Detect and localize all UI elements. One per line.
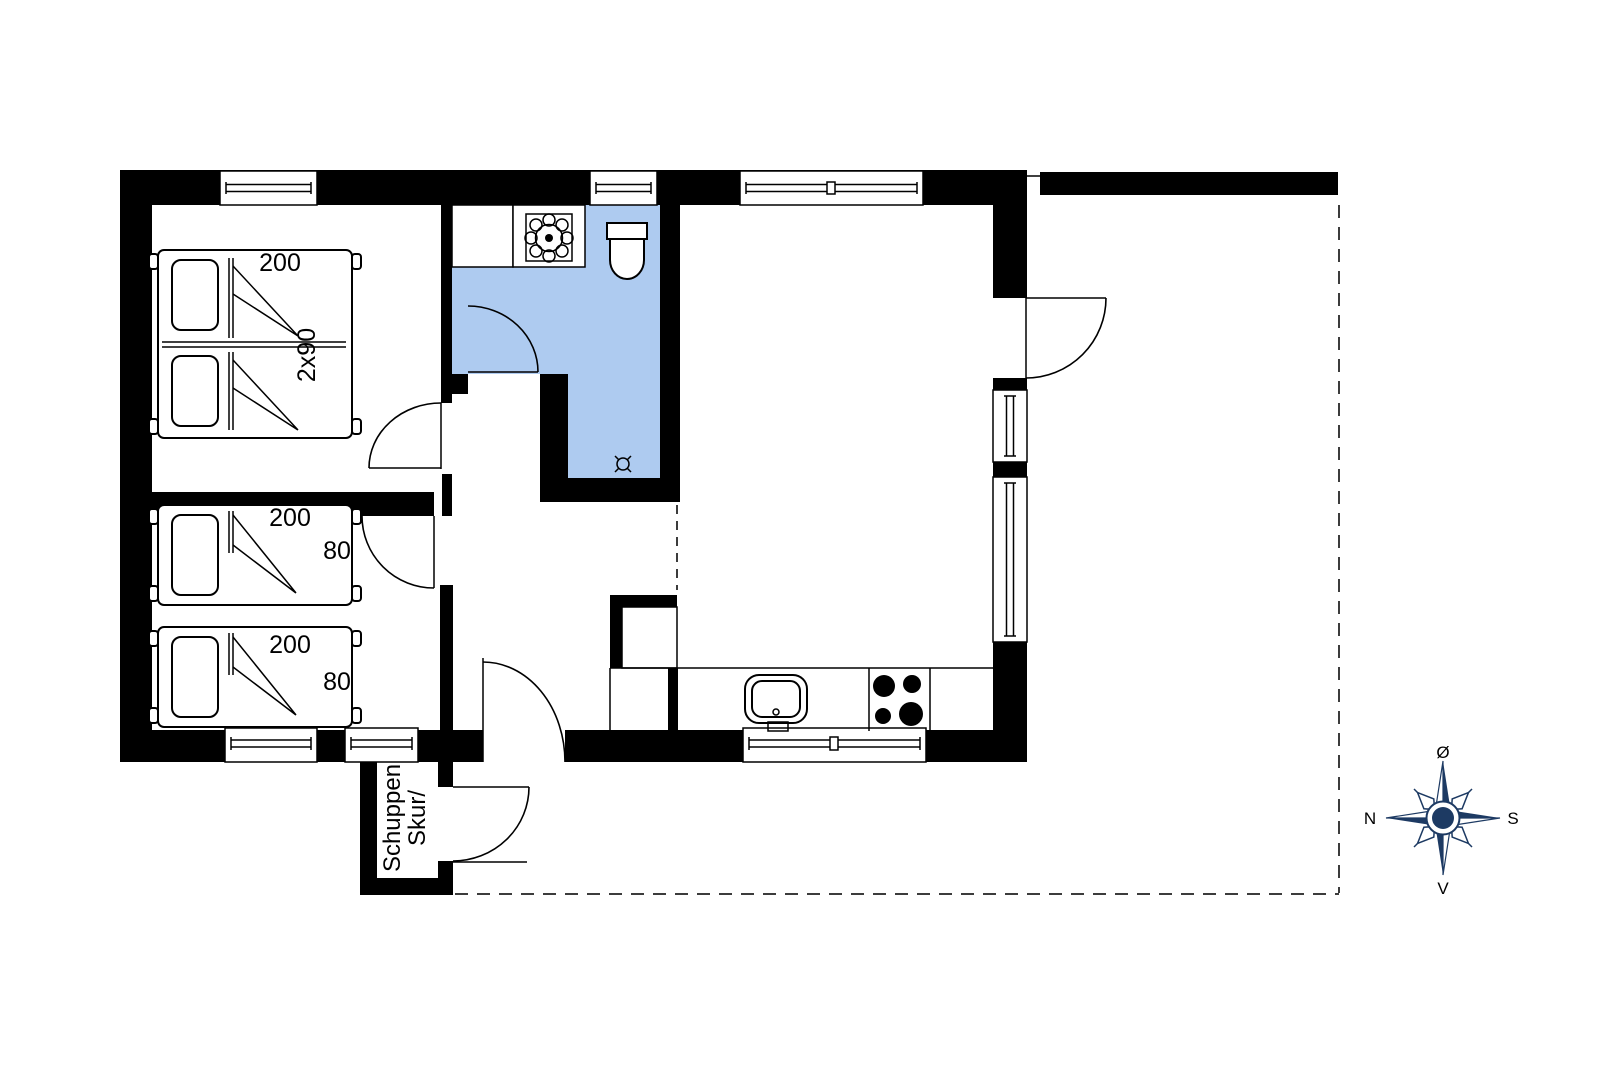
wall-bathroom-bottom <box>540 478 680 502</box>
kitchen-cabinet <box>622 607 677 668</box>
single-bed-1-width-label: 80 <box>323 537 351 565</box>
wall-kitchen-stub <box>668 668 678 732</box>
shed-wall-left <box>360 762 377 895</box>
floor-plan: 200 2x90 200 80 200 80 <box>0 0 1600 1066</box>
bed-double <box>149 250 361 438</box>
compass-north-label: N <box>1364 809 1376 828</box>
door-bedroom-twin <box>362 516 434 588</box>
wall-left <box>120 170 152 762</box>
single-bed-2-width-label: 80 <box>323 668 351 696</box>
window-kitchen <box>743 728 926 762</box>
washing-machine <box>513 205 585 267</box>
shed-wall-right-top <box>438 762 453 787</box>
double-bed-length-label: 200 <box>259 249 301 277</box>
shed-label-line2: Schuppen <box>379 764 406 872</box>
compass-east-label: Ø <box>1436 743 1449 762</box>
compass-west-label: V <box>1437 879 1449 898</box>
shed-wall-right-bottom <box>438 861 453 895</box>
single-bed-2-length-label: 200 <box>269 631 311 659</box>
window-shed-side <box>345 728 418 762</box>
window-bathroom <box>590 171 657 205</box>
window-bedroom-double <box>220 171 317 205</box>
wall-bathroom-door-stub <box>449 374 468 394</box>
window-bedroom-twin <box>225 728 317 762</box>
window-living-room-right-lower <box>993 477 1027 642</box>
double-bed-width-label: 2x90 <box>293 328 321 382</box>
wall-right <box>993 170 1027 762</box>
vanity-counter <box>452 205 513 267</box>
door-back <box>483 658 565 762</box>
compass-south-label: S <box>1507 809 1518 828</box>
kitchen <box>610 607 993 731</box>
door-entrance <box>993 298 1106 378</box>
floor-plan-drawing: 200 2x90 200 80 200 80 <box>0 0 1600 1066</box>
window-living-room-top <box>740 171 923 205</box>
boundary-wall-top-right <box>1040 172 1338 195</box>
shed-label-line1: Skur/ <box>404 790 431 846</box>
toilet <box>607 223 647 279</box>
door-shed <box>438 787 529 862</box>
terrace-area <box>700 770 1330 885</box>
stove <box>873 675 923 726</box>
wall-bedroom-bathroom <box>441 203 452 403</box>
wall-kitchen-niche-left <box>610 595 622 668</box>
kitchen-sink <box>745 675 807 731</box>
living-room-kitchen-area <box>690 210 985 650</box>
wall-stub-hall <box>442 474 452 516</box>
window-living-room-right-upper <box>993 390 1027 462</box>
door-bedroom-double <box>369 403 441 469</box>
single-bed-1-length-label: 200 <box>269 504 311 532</box>
wall-twin-bedroom-right <box>440 585 453 730</box>
wall-bathroom-right <box>660 203 680 502</box>
compass-rose: Ø N S V <box>1364 743 1519 898</box>
